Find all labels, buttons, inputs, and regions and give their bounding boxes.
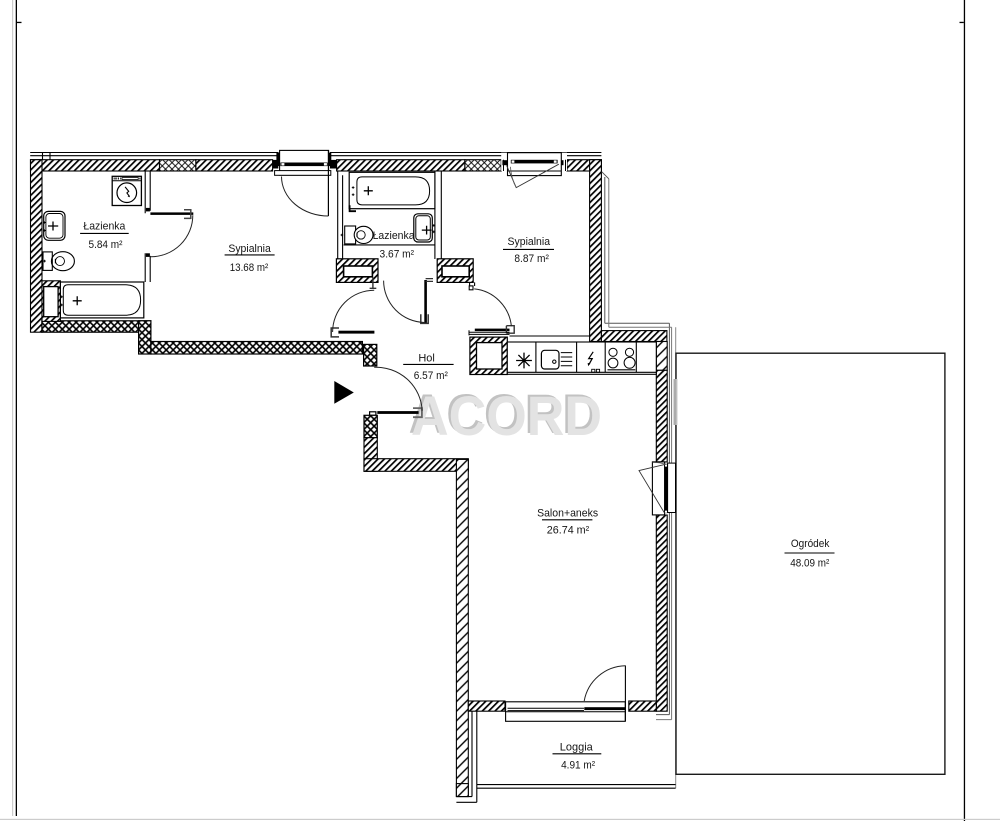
svg-text:48.09 m²: 48.09 m² [790,558,829,570]
svg-text:Ogródek: Ogródek [791,538,830,550]
svg-text:26.74 m²: 26.74 m² [547,525,590,537]
svg-text:Loggia: Loggia [560,741,594,753]
svg-text:Łazienka: Łazienka [83,221,126,233]
svg-text:ACORD: ACORD [411,385,602,447]
svg-text:4.91 m²: 4.91 m² [561,760,595,772]
svg-text:Salon+aneks: Salon+aneks [537,507,598,519]
svg-text:Łazienka: Łazienka [373,230,416,242]
svg-text:13.68 m²: 13.68 m² [230,262,269,274]
svg-text:3.67 m²: 3.67 m² [380,248,415,260]
svg-text:5.84 m²: 5.84 m² [89,239,123,251]
svg-text:8.87 m²: 8.87 m² [514,253,549,265]
svg-text:6.57 m²: 6.57 m² [414,370,448,382]
svg-text:Sypialnia: Sypialnia [228,243,271,255]
svg-text:Sypialnia: Sypialnia [508,236,551,248]
svg-text:Hol: Hol [418,353,435,365]
